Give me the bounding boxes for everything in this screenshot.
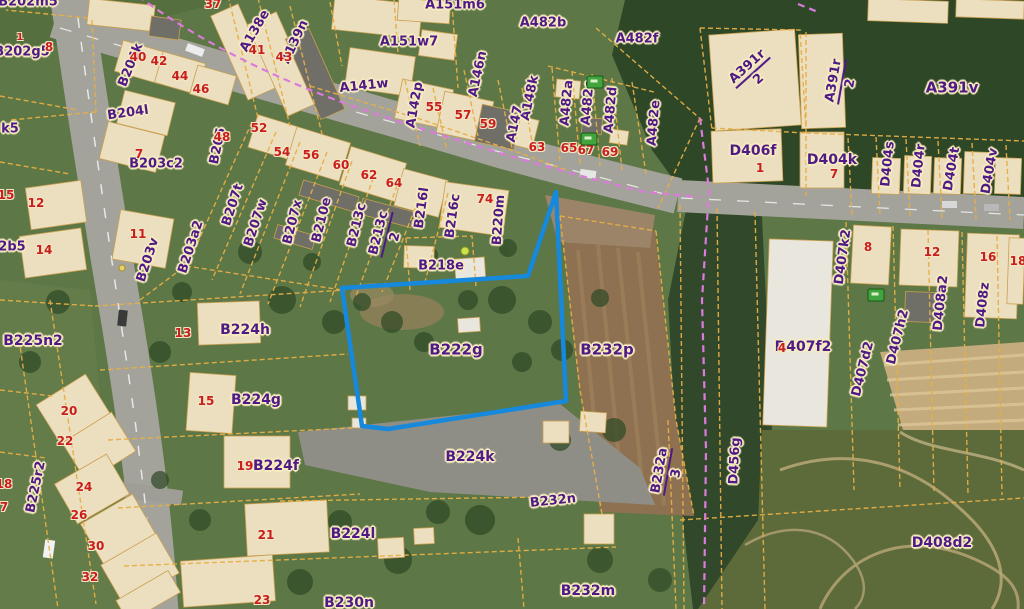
aerial-map-viewport[interactable]: B202m5B202g5B204kB204lB203c2B205B203vB20… [0, 0, 1024, 609]
aerial-basemap [0, 0, 1024, 609]
